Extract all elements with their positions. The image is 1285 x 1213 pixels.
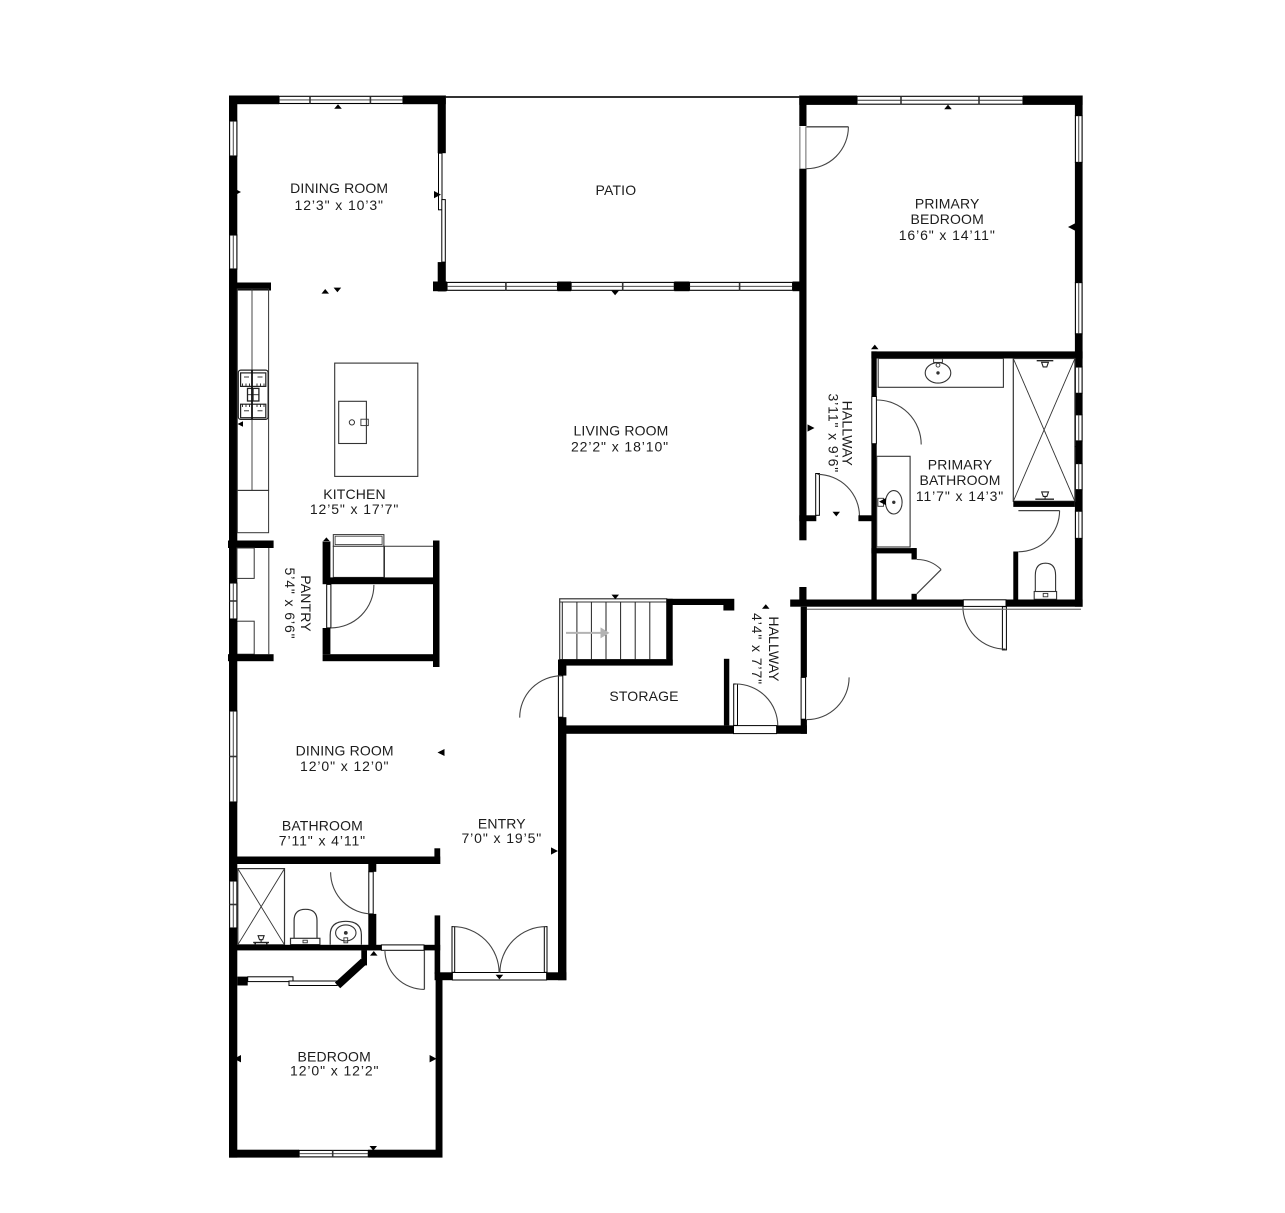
svg-text:BEDROOM: BEDROOM [911,211,984,227]
svg-text:STORAGE: STORAGE [609,688,678,704]
svg-text:3’11" x 9’6": 3’11" x 9’6" [825,393,841,473]
svg-text:HALLWAY: HALLWAY [766,616,782,682]
svg-text:KITCHEN: KITCHEN [323,486,386,502]
svg-text:4’4" x 7’7": 4’4" x 7’7" [749,613,765,685]
svg-text:BATHROOM: BATHROOM [282,817,363,833]
svg-text:16’6" x 14’11": 16’6" x 14’11" [899,227,996,243]
svg-text:5’4" x 6’6": 5’4" x 6’6" [282,568,298,640]
svg-text:12’3" x 10’3": 12’3" x 10’3" [295,197,384,213]
svg-text:11’7" x 14’3": 11’7" x 14’3" [916,488,1004,504]
svg-text:DINING ROOM: DINING ROOM [290,180,388,196]
svg-text:DINING ROOM: DINING ROOM [296,742,394,758]
svg-text:PATIO: PATIO [596,182,637,198]
svg-text:BATHROOM: BATHROOM [919,472,1000,488]
svg-text:12’0" x 12’2": 12’0" x 12’2" [290,1062,379,1078]
svg-text:7’0" x 19’5": 7’0" x 19’5" [461,830,542,846]
svg-text:22’2" x 18’10": 22’2" x 18’10" [571,439,669,455]
svg-text:12’5" x 17’7": 12’5" x 17’7" [310,501,399,517]
svg-text:PANTRY: PANTRY [298,575,314,632]
svg-text:12’0" x 12’0": 12’0" x 12’0" [300,758,389,774]
svg-text:PRIMARY: PRIMARY [915,195,980,211]
svg-text:7’11" x 4’11": 7’11" x 4’11" [279,832,366,848]
svg-text:PRIMARY: PRIMARY [928,456,993,472]
svg-text:LIVING ROOM: LIVING ROOM [574,423,669,439]
